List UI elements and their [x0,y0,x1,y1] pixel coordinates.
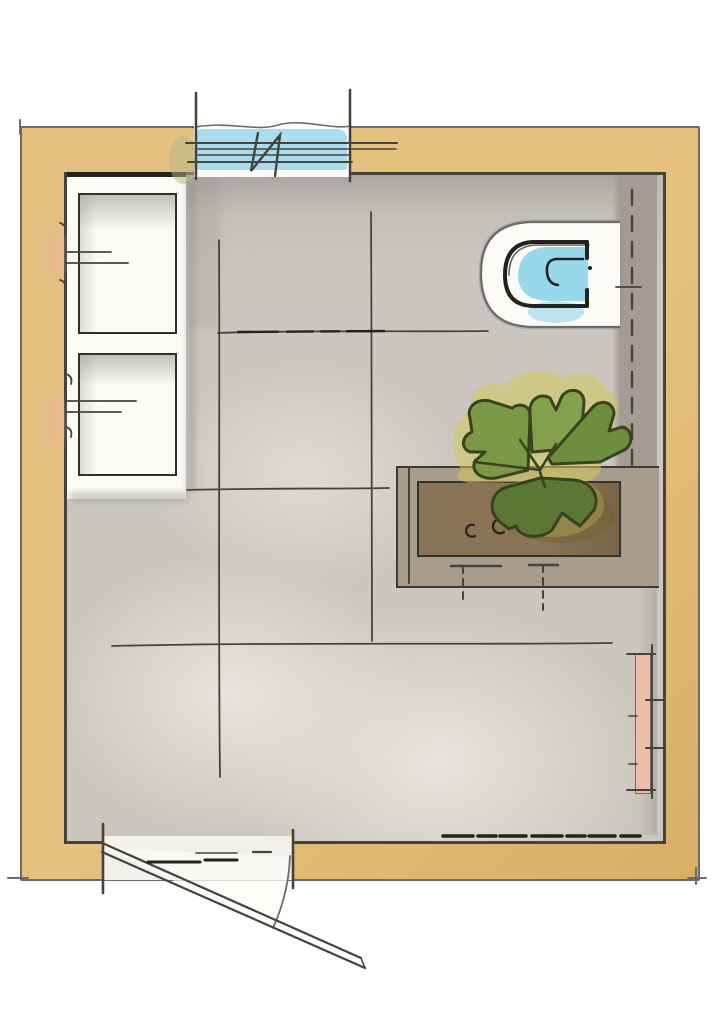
wall-paint-smudge [42,222,64,284]
storage-unit-bottom [78,353,177,476]
window [194,122,351,177]
window-glass [197,129,347,170]
cabinet-shadow [70,492,188,502]
door-opening [103,836,293,880]
radiator [635,653,651,794]
cabinet-shadow [186,182,196,492]
wall-paint-smudge [42,392,64,450]
toilet-prewall [612,175,657,469]
planter-soil [417,481,621,557]
stacked-storage-units [67,172,186,499]
planter-bench [396,466,659,588]
floor-plan-canvas [0,0,724,1024]
storage-unit-top [78,193,177,334]
